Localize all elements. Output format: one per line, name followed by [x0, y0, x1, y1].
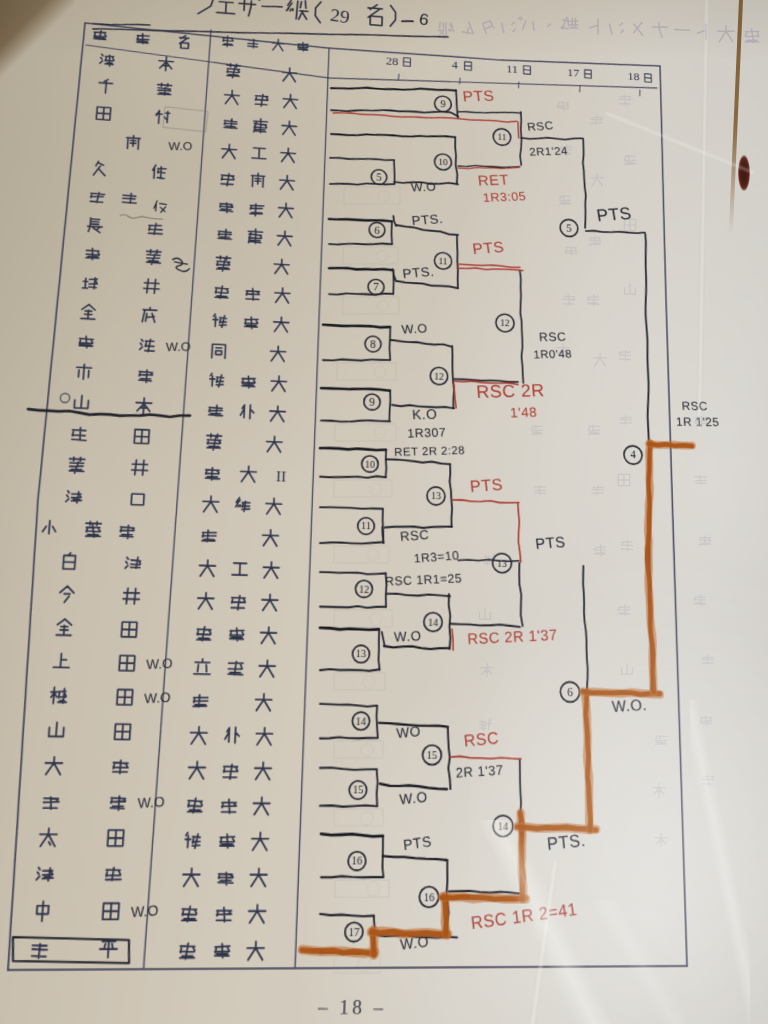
- svg-text:17: 17: [567, 66, 579, 80]
- svg-text:W.O.: W.O.: [611, 695, 648, 715]
- svg-text:W.O: W.O: [401, 321, 428, 337]
- svg-text:6: 6: [418, 10, 431, 30]
- svg-text:1R0'48: 1R0'48: [533, 348, 572, 361]
- svg-text:1R 1'25: 1R 1'25: [676, 416, 720, 430]
- svg-text:9: 9: [369, 396, 375, 409]
- svg-text:RSC: RSC: [399, 527, 429, 544]
- svg-text:9: 9: [440, 99, 445, 111]
- svg-text:W.O: W.O: [394, 628, 422, 645]
- svg-text:6: 6: [374, 225, 380, 237]
- svg-text:14: 14: [356, 716, 367, 728]
- svg-text:RSC 1R 2=41: RSC 1R 2=41: [470, 900, 578, 934]
- svg-text:6: 6: [567, 686, 574, 700]
- svg-text:16: 16: [351, 856, 362, 868]
- svg-text:RSC: RSC: [681, 400, 708, 413]
- svg-text:W.O: W.O: [138, 794, 165, 812]
- svg-text:14: 14: [428, 618, 439, 630]
- svg-text:11: 11: [361, 522, 371, 533]
- svg-text:1R307: 1R307: [407, 426, 447, 441]
- svg-text:15: 15: [352, 785, 363, 797]
- svg-text:PTS: PTS: [469, 476, 504, 496]
- svg-text:18: 18: [627, 70, 639, 84]
- svg-text:11: 11: [498, 133, 507, 143]
- svg-text:2R 1'37: 2R 1'37: [455, 763, 504, 781]
- svg-text:1'48: 1'48: [510, 404, 538, 420]
- svg-text:W.O: W.O: [410, 180, 436, 194]
- svg-text:RSC: RSC: [463, 729, 500, 751]
- svg-text:1R3:05: 1R3:05: [482, 190, 527, 205]
- svg-text:PTS: PTS: [595, 203, 633, 225]
- svg-text:8: 8: [370, 338, 376, 351]
- svg-text:WO: WO: [396, 723, 422, 742]
- svg-text:RET: RET: [477, 173, 510, 189]
- svg-text:W.O: W.O: [146, 656, 172, 673]
- svg-text:14: 14: [498, 821, 509, 833]
- svg-text:13: 13: [431, 492, 441, 503]
- svg-text:5: 5: [376, 172, 382, 184]
- svg-text:13: 13: [356, 650, 367, 662]
- svg-text:W.O: W.O: [144, 690, 171, 707]
- svg-text:W.O: W.O: [131, 903, 158, 922]
- svg-text:10: 10: [438, 158, 448, 168]
- svg-text:PTS: PTS: [402, 833, 432, 854]
- svg-text:29: 29: [329, 6, 350, 28]
- svg-text:PTS: PTS: [462, 89, 495, 106]
- svg-text:RET 2R 2:28: RET 2R 2:28: [394, 444, 466, 459]
- svg-text:11: 11: [438, 257, 448, 267]
- svg-text:PTS.: PTS.: [402, 264, 435, 281]
- svg-text:28: 28: [386, 54, 399, 68]
- svg-text:RSC 2R: RSC 2R: [476, 380, 546, 402]
- svg-text:13: 13: [497, 559, 507, 570]
- svg-text:PTS.: PTS.: [411, 211, 444, 228]
- svg-text:– 18 –: – 18 –: [316, 996, 386, 1020]
- svg-text:12: 12: [359, 585, 370, 596]
- svg-text:RSC 1R1=25: RSC 1R1=25: [385, 572, 463, 589]
- svg-text:16: 16: [424, 892, 435, 904]
- svg-text:II: II: [276, 469, 287, 486]
- svg-text:11: 11: [506, 62, 518, 76]
- svg-text:7: 7: [373, 281, 380, 293]
- svg-text:K.O: K.O: [412, 406, 438, 422]
- svg-text:RSC 2R 1'37: RSC 2R 1'37: [467, 626, 558, 647]
- svg-text:W.O: W.O: [399, 789, 429, 809]
- svg-text:PTS: PTS: [472, 239, 506, 258]
- svg-text:W.O: W.O: [166, 340, 191, 354]
- svg-text:RSC: RSC: [538, 330, 566, 345]
- svg-text:1R3=10: 1R3=10: [413, 549, 460, 566]
- svg-text:4: 4: [630, 449, 636, 462]
- svg-text:10: 10: [365, 460, 376, 471]
- svg-text:4: 4: [452, 58, 459, 71]
- svg-text:12: 12: [434, 372, 444, 383]
- svg-text:PTS: PTS: [534, 533, 566, 553]
- svg-text:PTS.: PTS.: [546, 832, 587, 855]
- svg-text:15: 15: [427, 750, 438, 762]
- svg-text:RSC: RSC: [526, 119, 554, 134]
- svg-text:W.O: W.O: [168, 140, 192, 153]
- svg-text:12: 12: [500, 319, 510, 330]
- svg-text:17: 17: [348, 927, 360, 940]
- svg-text:5: 5: [566, 223, 571, 235]
- svg-text:2R1'24: 2R1'24: [529, 145, 569, 159]
